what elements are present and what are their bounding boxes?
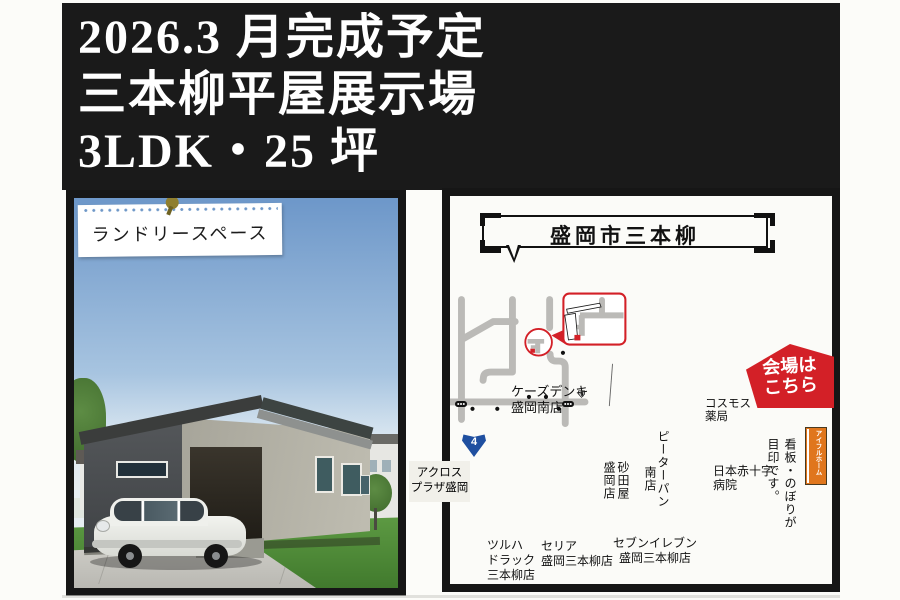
header-line-spec: 3LDK・25 坪: [78, 123, 840, 180]
dot-cosmos: [561, 351, 565, 355]
venue-marker: [574, 335, 580, 341]
venue-zoom-callout: [563, 294, 625, 345]
scan-edge: [62, 595, 840, 598]
car-windows: [114, 501, 204, 521]
flag-label: アイフルホーム: [810, 430, 824, 476]
road-diagonal: [463, 322, 515, 339]
label-sunadaya: 砂田屋 盛岡店: [602, 461, 630, 537]
traffic-light-icon: [455, 401, 467, 407]
header-line-title: 三本柳平屋展示場: [78, 66, 840, 123]
house-photo: ランドリースペース: [74, 198, 398, 588]
title-corner: [754, 240, 775, 253]
venue-marker-small: [530, 349, 535, 353]
house-window: [315, 456, 334, 493]
label-across-plaza: アクロス プラザ盛岡: [409, 461, 470, 502]
car-wheel-front: [118, 544, 142, 568]
house-photo-panel: ランドリースペース: [66, 190, 406, 596]
title-corner: [754, 213, 775, 226]
aiful-home-flag-icon: アイフルホーム: [805, 427, 827, 485]
map-title: 盛岡市三本柳: [484, 220, 766, 250]
label-peterpan-branch: 南店: [642, 466, 657, 512]
label-ks-denki: ケーズデンキ 盛岡南店: [511, 384, 588, 416]
house-window: [341, 463, 362, 496]
house-window: [360, 475, 370, 495]
label-peterpan: ピーターパン: [655, 430, 670, 516]
header-banner: 2026.3 月完成予定 三本柳平屋展示場 3LDK・25 坪: [62, 3, 840, 190]
label-seven-eleven: セブンイレブン 盛岡三本柳店: [613, 536, 697, 566]
venue-zoom-circle: [525, 329, 552, 356]
flyer-page: 2026.3 月完成予定 三本柳平屋展示場 3LDK・25 坪: [0, 0, 900, 600]
header-line-completion: 2026.3 月完成予定: [78, 9, 840, 66]
label-signboard-note: 看板・のぼりが 目印です。: [764, 438, 798, 536]
title-corner: [480, 213, 501, 226]
label-cosmos-pharmacy: コスモス 薬局: [705, 398, 751, 424]
title-corner: [480, 240, 501, 253]
label-tsuruha-drug: ツルハ ドラック 三本柳店: [487, 538, 535, 583]
car-shadow: [90, 554, 262, 570]
house-slit-window: [116, 461, 168, 478]
laundry-space-note: ランドリースペース: [78, 203, 283, 257]
car-headlight: [96, 520, 110, 532]
car-wheel-rear: [204, 544, 228, 568]
pushpin-icon: [166, 198, 179, 209]
label-seria: セリア 盛岡三本柳店: [541, 539, 613, 569]
bg-window: [382, 460, 391, 472]
road-middle-vertical: [483, 300, 512, 381]
note-label: ランドリースペース: [78, 219, 282, 247]
dot-tsuruha: [470, 407, 474, 411]
nobori-pole: [609, 364, 612, 406]
dot-seria: [495, 407, 499, 411]
map-title-box: 盛岡市三本柳: [482, 215, 768, 248]
